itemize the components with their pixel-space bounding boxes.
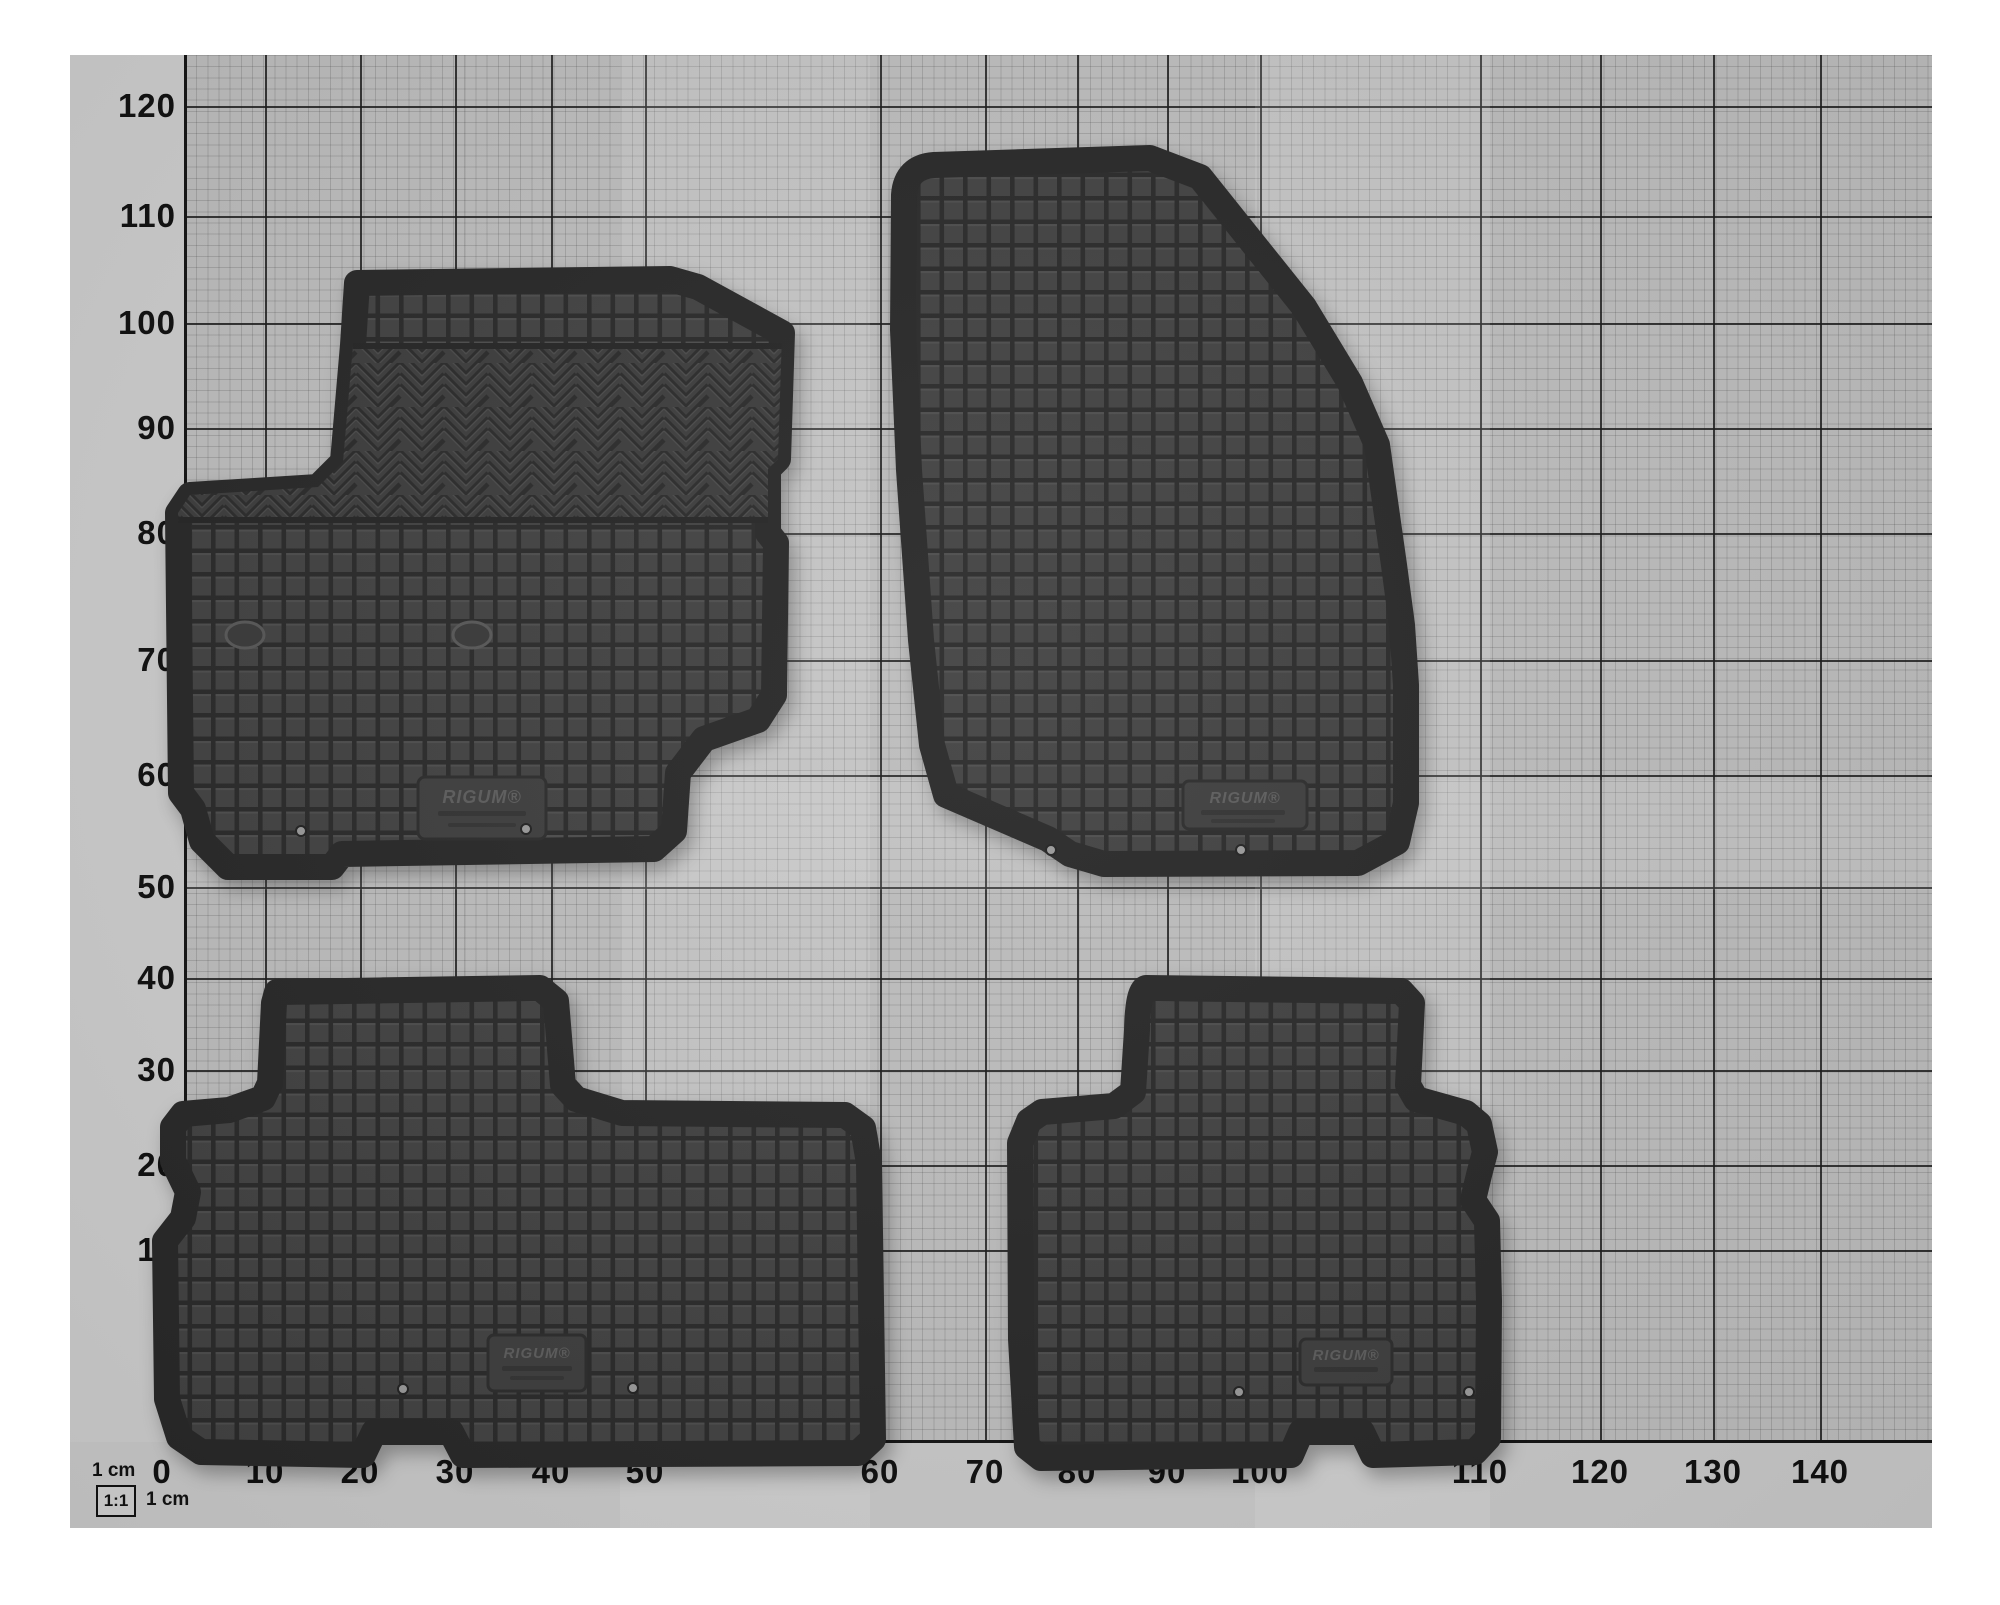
fastener-dot xyxy=(1234,1387,1244,1397)
fastener-dot xyxy=(1464,1387,1474,1397)
product-photo: 120110100908070605040302010 010203040506… xyxy=(70,55,1932,1528)
scale-side-label: 1 cm xyxy=(146,1489,189,1511)
plate-code-bar xyxy=(1314,1367,1378,1372)
mat-outline xyxy=(1020,988,1489,1458)
mat-rear-right: RIGUM® xyxy=(70,55,1932,1528)
scale-ratio-box: 1:1 xyxy=(96,1485,136,1517)
plate-brand-text: RIGUM® xyxy=(1312,1347,1379,1364)
rigum-plate: RIGUM® xyxy=(1300,1339,1392,1385)
scale-top-label: 1 cm xyxy=(92,1460,135,1482)
screenshot-canvas: 120110100908070605040302010 010203040506… xyxy=(0,0,2000,1605)
